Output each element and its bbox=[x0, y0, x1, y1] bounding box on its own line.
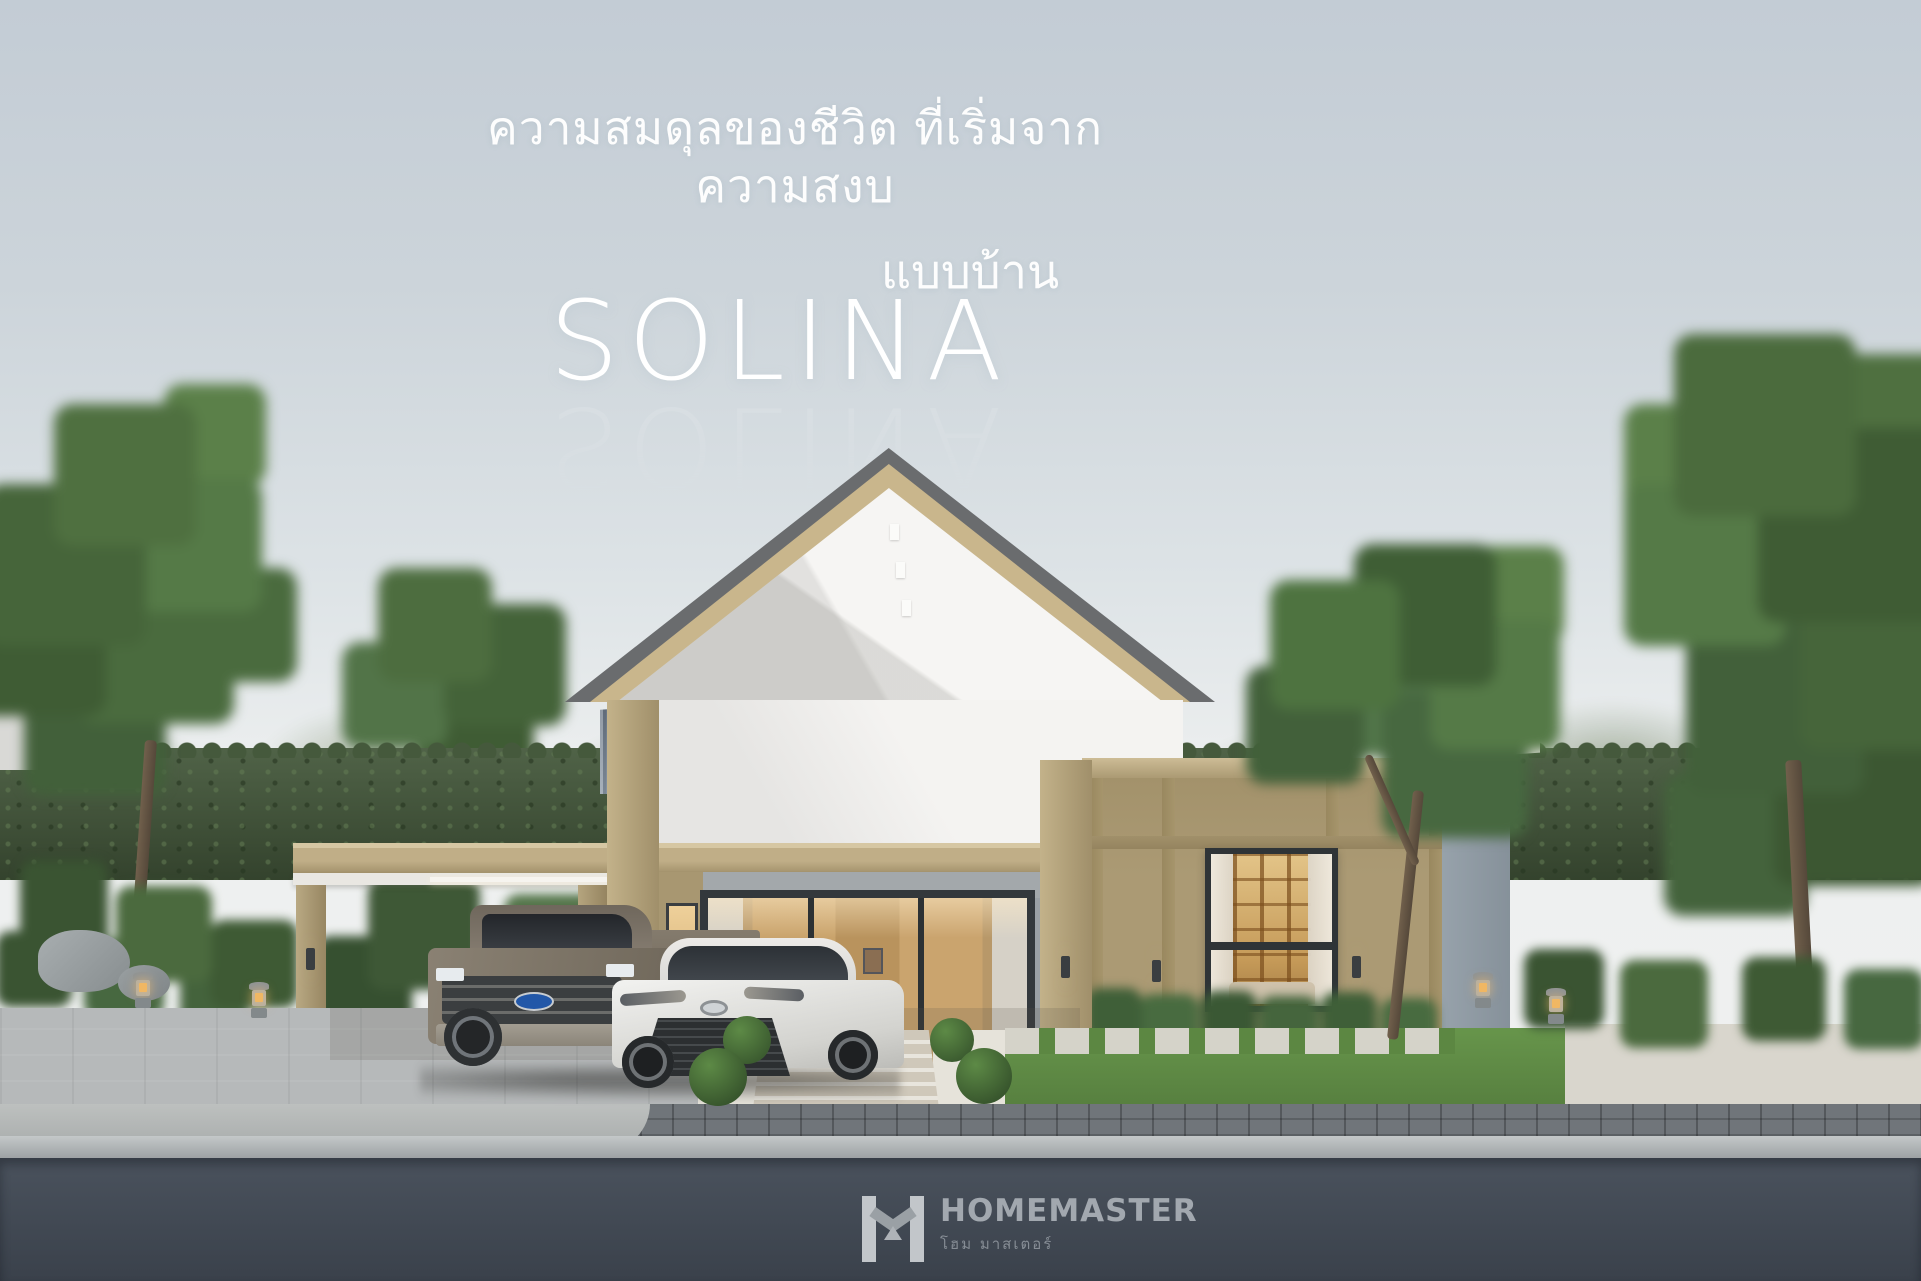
logo-bar-left bbox=[862, 1196, 876, 1262]
pickup-wheel-front bbox=[444, 1008, 502, 1066]
stone-lantern-4 bbox=[1545, 988, 1567, 1024]
left-boundary-wall bbox=[0, 700, 70, 770]
lantern-base bbox=[1475, 998, 1491, 1008]
lantern-base bbox=[251, 1008, 267, 1018]
lantern-base bbox=[1548, 1014, 1564, 1024]
garden-tree-canopy bbox=[0, 0, 10, 10]
gable-vent-2 bbox=[896, 562, 905, 578]
tagline-text: ความสมดุลของชีวิต ที่เริ่มจากความสงบ bbox=[430, 100, 1160, 215]
stone-lantern-3 bbox=[1472, 972, 1494, 1008]
lantern-cap bbox=[1473, 972, 1493, 980]
stone-lantern-2 bbox=[248, 982, 270, 1018]
brand-text-block: HOMEMASTER โฮม มาสเตอร์ bbox=[940, 1196, 1198, 1256]
lantern-cap bbox=[249, 982, 269, 990]
lantern-base bbox=[135, 998, 151, 1008]
carport-roof bbox=[293, 843, 1088, 873]
topiary-ball-2 bbox=[689, 1048, 747, 1106]
sedan-wheel-rear bbox=[828, 1030, 878, 1080]
brand-name-thai: โฮม มาสเตอร์ bbox=[940, 1232, 1198, 1256]
poster-canvas: ความสมดุลของชีวิต ที่เริ่มจากความสงบ แบบ… bbox=[0, 0, 1921, 1281]
toyota-emblem bbox=[700, 1000, 728, 1016]
lantern-light bbox=[1479, 983, 1487, 992]
wing-sconce-right bbox=[1352, 956, 1361, 978]
door-wall-picture-1 bbox=[863, 948, 883, 974]
wing-sconce-left bbox=[1152, 960, 1161, 982]
lantern-light bbox=[255, 993, 263, 1002]
right-wing-parapet-cap bbox=[1082, 758, 1450, 778]
ford-badge bbox=[514, 992, 554, 1011]
sedan-windows bbox=[668, 946, 848, 984]
brand-name: HOMEMASTER bbox=[940, 1196, 1198, 1227]
carport-post-sconce bbox=[306, 948, 315, 970]
window-bed bbox=[1229, 982, 1315, 1004]
pickup-headlight-right bbox=[606, 964, 634, 977]
topiary-ball-4 bbox=[956, 1048, 1012, 1104]
homemaster-h-roof-icon bbox=[862, 1196, 924, 1262]
lantern-light bbox=[139, 983, 147, 992]
stone-lantern-1 bbox=[132, 972, 154, 1008]
pickup-headlight-left bbox=[436, 968, 464, 981]
entry-sconce-right bbox=[1061, 956, 1070, 978]
bedroom-window bbox=[1205, 848, 1338, 1012]
gravel-far-right bbox=[1565, 1024, 1921, 1116]
curb bbox=[0, 1136, 1921, 1158]
window-mid-rail bbox=[1205, 942, 1338, 950]
logo-bar-right bbox=[910, 1196, 924, 1262]
lantern-cap bbox=[1546, 988, 1566, 996]
gable-vent-1 bbox=[890, 524, 899, 540]
sedan-wheel-front bbox=[622, 1036, 674, 1088]
garden-rock bbox=[38, 930, 130, 992]
brand-lockup: HOMEMASTER โฮม มาสเตอร์ bbox=[862, 1196, 1198, 1262]
model-name-title: SOLINA bbox=[520, 284, 1040, 400]
lantern-cap bbox=[133, 972, 153, 980]
gable-vent-3 bbox=[902, 600, 911, 616]
lantern-light bbox=[1552, 999, 1560, 1008]
model-name-reflection-text: SOLINA bbox=[520, 402, 1040, 504]
